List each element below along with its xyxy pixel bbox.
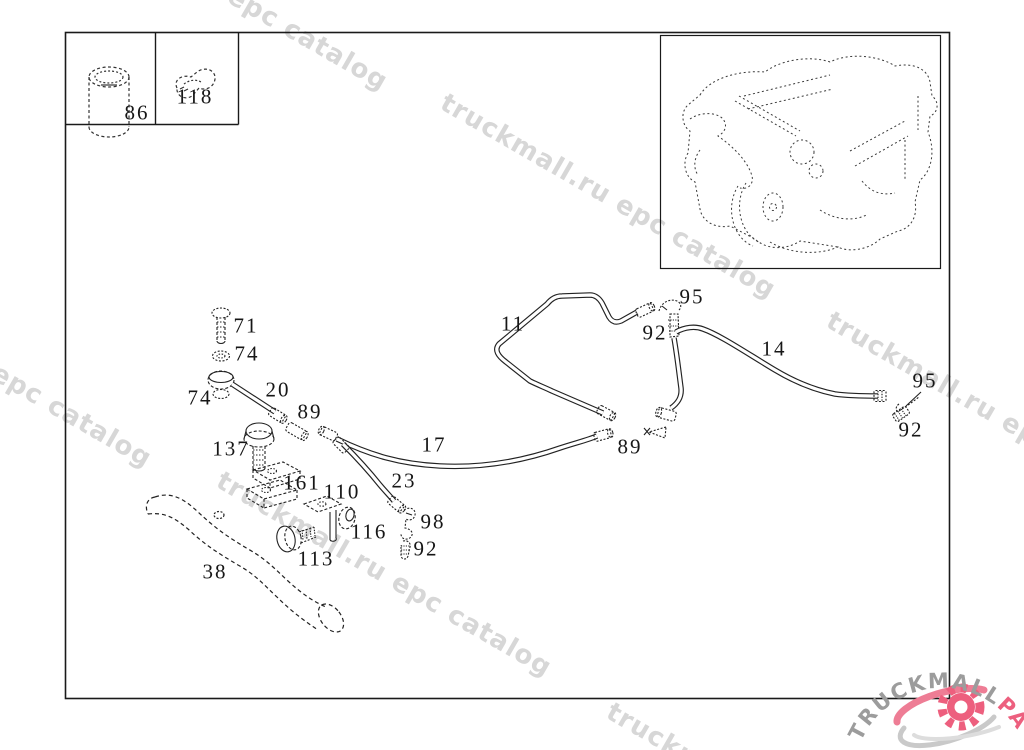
bolt-71-drawing bbox=[212, 308, 230, 344]
part-label: 11 bbox=[501, 312, 525, 337]
part-label: 23 bbox=[392, 469, 417, 494]
truckmall-logo: TRUCKMALLPARTS bbox=[844, 648, 1024, 750]
part-label: 116 bbox=[351, 520, 388, 545]
part-label: 14 bbox=[762, 337, 787, 362]
thumbnail-cells bbox=[66, 33, 239, 125]
screw-92-bottom-drawing bbox=[401, 541, 410, 559]
part-label: 92 bbox=[414, 537, 439, 562]
part-label: 17 bbox=[422, 433, 447, 458]
cone-89-right-drawing bbox=[644, 427, 666, 438]
oil-filter-icon bbox=[89, 67, 129, 137]
engine-sketch bbox=[683, 56, 937, 252]
elbow-95-top-drawing bbox=[659, 300, 681, 311]
clip-98-drawing bbox=[401, 508, 415, 539]
part-label: 20 bbox=[266, 378, 291, 403]
parts-diagram-art bbox=[0, 0, 1024, 750]
part-label: 137 bbox=[212, 437, 250, 462]
part-label: 92 bbox=[899, 418, 924, 443]
part-label: 89 bbox=[618, 435, 643, 460]
part-label: 38 bbox=[203, 560, 228, 585]
part-label: 98 bbox=[421, 510, 446, 535]
engine-inset-frame bbox=[661, 36, 941, 269]
part-label: 92 bbox=[643, 321, 668, 346]
part-label: 161 bbox=[283, 471, 321, 496]
return-pipe-drawing bbox=[655, 338, 681, 422]
part-label: 110 bbox=[324, 480, 361, 505]
part-label: 71 bbox=[234, 314, 259, 339]
part-label: 113 bbox=[298, 547, 335, 572]
part-label: 74 bbox=[235, 342, 260, 367]
part-label: 95 bbox=[680, 285, 705, 310]
part-label: 118 bbox=[177, 85, 214, 110]
washer-74-upper-drawing bbox=[213, 351, 230, 361]
part-label: 95 bbox=[913, 369, 938, 394]
part-label: 89 bbox=[298, 400, 323, 425]
catalog-page: truckmall.ru epc catalogtruckmall.ru epc… bbox=[0, 0, 1024, 750]
part-label: 74 bbox=[188, 386, 213, 411]
union-89-left-drawing bbox=[285, 422, 310, 442]
part-label: 86 bbox=[125, 101, 150, 126]
